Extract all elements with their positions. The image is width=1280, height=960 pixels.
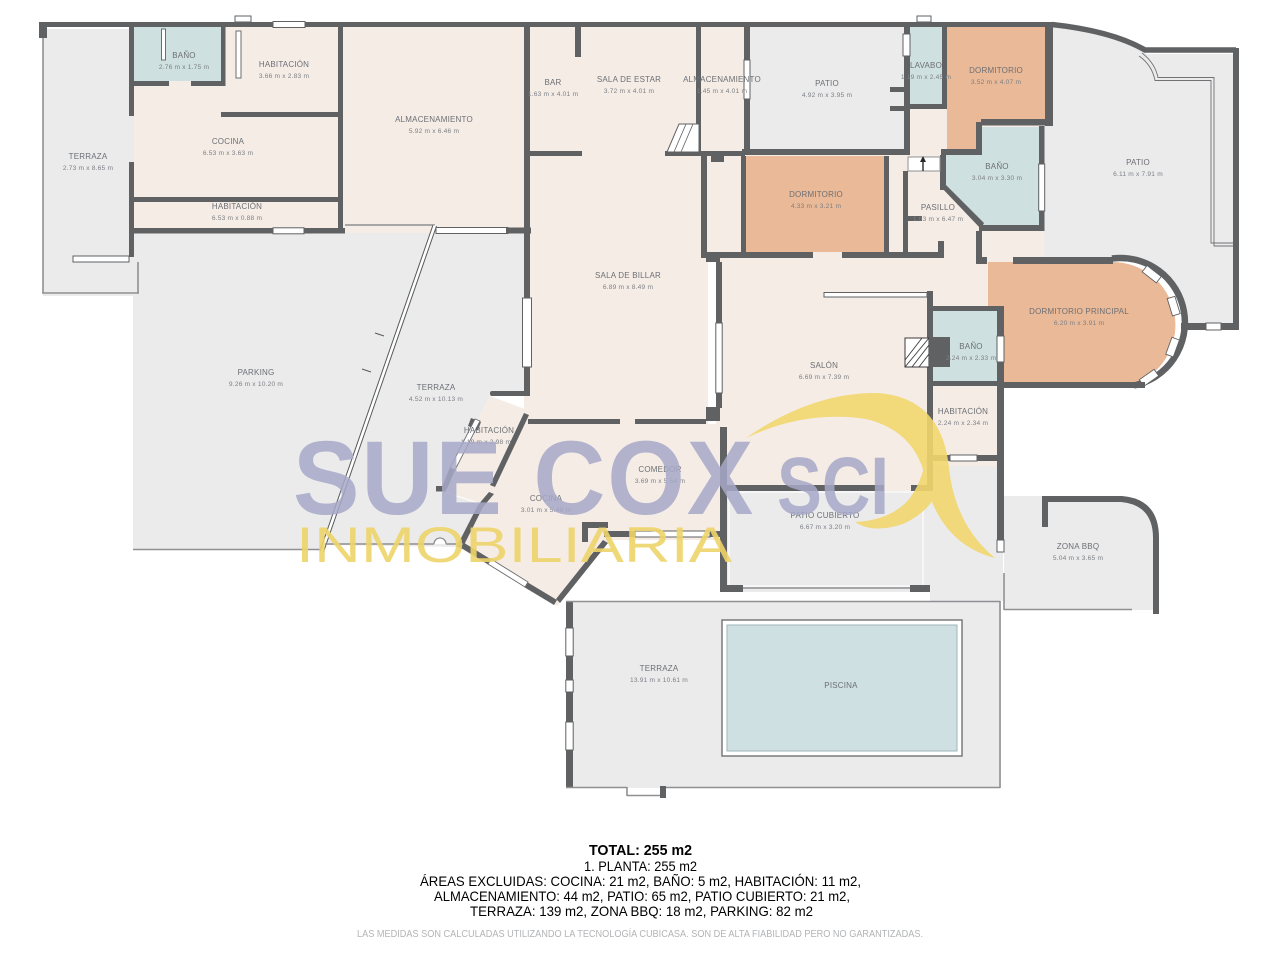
svg-text:6.69 m x 7.39 m: 6.69 m x 7.39 m: [799, 374, 850, 381]
svg-text:6.53 m x 0.88 m: 6.53 m x 0.88 m: [212, 215, 263, 222]
svg-text:6.89 m x 8.49 m: 6.89 m x 8.49 m: [603, 284, 654, 291]
svg-text:ÁREAS EXCLUIDAS: COCINA: 21 m2: ÁREAS EXCLUIDAS: COCINA: 21 m2, BAÑO: 5 …: [420, 873, 861, 889]
svg-text:PASILLO: PASILLO: [921, 203, 955, 212]
svg-text:LAS MEDIDAS SON CALCULADAS UTI: LAS MEDIDAS SON CALCULADAS UTILIZANDO LA…: [357, 927, 923, 940]
svg-text:HABITACIÓN: HABITACIÓN: [259, 60, 309, 69]
svg-text:2.73 m x 8.65 m: 2.73 m x 8.65 m: [63, 165, 114, 172]
svg-text:1. PLANTA: 255 m2: 1. PLANTA: 255 m2: [584, 858, 697, 874]
svg-text:TERRAZA: TERRAZA: [417, 383, 456, 392]
svg-text:3.52 m x 4.07 m: 3.52 m x 4.07 m: [971, 79, 1022, 86]
svg-text:1.63 m x 4.01 m: 1.63 m x 4.01 m: [528, 91, 579, 98]
svg-text:SALÓN: SALÓN: [810, 361, 838, 370]
svg-text:BAÑO: BAÑO: [959, 342, 982, 351]
svg-text:INMOBILIARIA: INMOBILIARIA: [296, 517, 733, 573]
svg-text:BAÑO: BAÑO: [172, 51, 195, 60]
svg-text:6.20 m x 3.91 m: 6.20 m x 3.91 m: [1054, 320, 1105, 327]
svg-text:3.04 m x 3.30 m: 3.04 m x 3.30 m: [972, 175, 1023, 182]
svg-text:ALMACENAMIENTO: ALMACENAMIENTO: [683, 75, 761, 84]
svg-text:LAVABO: LAVABO: [910, 61, 942, 70]
svg-text:SALA DE BILLAR: SALA DE BILLAR: [595, 271, 661, 280]
svg-text:ZONA BBQ: ZONA BBQ: [1057, 542, 1100, 551]
svg-text:3.66 m x 2.83 m: 3.66 m x 2.83 m: [259, 73, 310, 80]
svg-text:5.04 m x 3.65 m: 5.04 m x 3.65 m: [1053, 555, 1104, 562]
svg-text:2.24 m x 2.34 m: 2.24 m x 2.34 m: [938, 420, 989, 427]
svg-text:TOTAL: 255 m2: TOTAL: 255 m2: [589, 842, 692, 859]
svg-text:PISCINA: PISCINA: [824, 681, 858, 690]
svg-text:COCINA: COCINA: [212, 137, 245, 146]
svg-text:TERRAZA: TERRAZA: [640, 664, 679, 673]
svg-text:HABITACIÓN: HABITACIÓN: [938, 407, 988, 416]
svg-text:6.53 m x 3.63 m: 6.53 m x 3.63 m: [203, 150, 254, 157]
svg-text:1.19 m x 2.45 m: 1.19 m x 2.45 m: [901, 74, 952, 81]
svg-text:HABITACIÓN: HABITACIÓN: [212, 202, 262, 211]
svg-text:13.91 m x 10.61 m: 13.91 m x 10.61 m: [630, 677, 688, 684]
svg-text:PATIO: PATIO: [815, 79, 839, 88]
svg-text:9.26 m x 10.20 m: 9.26 m x 10.20 m: [229, 381, 283, 388]
svg-text:ALMACENAMIENTO: ALMACENAMIENTO: [395, 115, 473, 124]
svg-text:5.92 m x 6.46 m: 5.92 m x 6.46 m: [409, 128, 460, 135]
svg-text:2.76 m x 1.75 m: 2.76 m x 1.75 m: [159, 64, 210, 71]
svg-text:BAR: BAR: [544, 78, 561, 87]
svg-text:SCI: SCI: [777, 440, 889, 532]
svg-text:4.52 m x 10.13 m: 4.52 m x 10.13 m: [409, 396, 463, 403]
svg-text:3.72 m x 4.01 m: 3.72 m x 4.01 m: [604, 88, 655, 95]
svg-text:1.45 m x 4.01 m: 1.45 m x 4.01 m: [697, 88, 748, 95]
svg-text:1.63 m x 6.47 m: 1.63 m x 6.47 m: [913, 216, 964, 223]
svg-text:TERRAZA: 139 m2, ZONA BBQ: 18: TERRAZA: 139 m2, ZONA BBQ: 18 m2, PARKIN…: [470, 903, 813, 919]
svg-text:SALA DE ESTAR: SALA DE ESTAR: [597, 75, 661, 84]
svg-text:BAÑO: BAÑO: [985, 162, 1008, 171]
svg-text:DORMITORIO: DORMITORIO: [789, 190, 843, 199]
svg-text:TERRAZA: TERRAZA: [69, 152, 108, 161]
svg-text:2.24 m x 2.33 m: 2.24 m x 2.33 m: [946, 355, 997, 362]
svg-text:ALMACENAMIENTO: 44 m2, PATIO:: ALMACENAMIENTO: 44 m2, PATIO: 65 m2, PAT…: [434, 888, 850, 904]
svg-text:6.11 m x 7.91 m: 6.11 m x 7.91 m: [1113, 171, 1163, 178]
svg-text:PARKING: PARKING: [238, 368, 275, 377]
svg-text:PATIO: PATIO: [1126, 158, 1150, 167]
svg-text:DORMITORIO: DORMITORIO: [969, 66, 1023, 75]
svg-text:DORMITORIO PRINCIPAL: DORMITORIO PRINCIPAL: [1029, 307, 1129, 316]
svg-text:4.33 m x 3.21 m: 4.33 m x 3.21 m: [791, 203, 842, 210]
svg-text:4.92 m x 3.95 m: 4.92 m x 3.95 m: [802, 92, 853, 99]
